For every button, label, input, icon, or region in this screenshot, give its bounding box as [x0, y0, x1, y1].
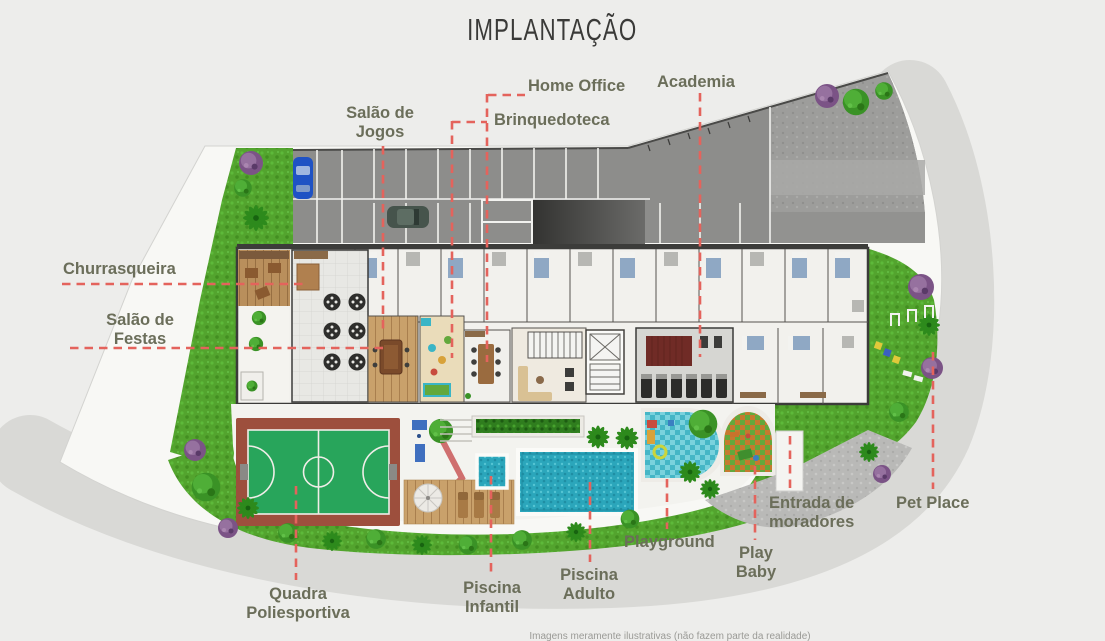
garage-ramp: [533, 200, 645, 245]
sports-court: [236, 418, 400, 526]
playroom: [420, 316, 464, 402]
label-brinquedoteca: Brinquedoteca: [494, 111, 610, 130]
gym-room: [636, 328, 733, 402]
car-dark: [387, 206, 429, 228]
label-academia: Academia: [657, 73, 735, 92]
label-churrasqueira: Churrasqueira: [63, 260, 176, 279]
play-baby-area: [720, 406, 776, 476]
page-title: IMPLANTAÇÃO: [0, 12, 1105, 48]
car-blue: [293, 157, 313, 199]
party-room: [292, 250, 368, 402]
label-entrada: Entrada demoradores: [769, 494, 854, 532]
label-salao-jogos: Salão deJogos: [334, 104, 426, 142]
label-home-office: Home Office: [528, 77, 625, 96]
umbrella: [414, 484, 442, 512]
label-play-baby: PlayBaby: [728, 544, 784, 582]
label-piscina-infantil: PiscinaInfantil: [449, 579, 535, 617]
building: [237, 244, 868, 410]
adult-pool: [518, 450, 636, 514]
label-playground: Playground: [624, 533, 715, 552]
label-salao-festas: Salão deFestas: [95, 311, 185, 349]
label-piscina-adulto: PiscinaAdulto: [546, 566, 632, 604]
label-quadra: QuadraPoliesportiva: [218, 585, 378, 623]
disclaimer-text: Imagens meramente ilustrativas (não faze…: [500, 631, 840, 641]
label-pet-place: Pet Place: [896, 494, 969, 513]
game-room: [368, 316, 418, 402]
lobby-core: [512, 328, 624, 402]
churrasqueira-area: [238, 250, 290, 402]
site-plan-page: IMPLANTAÇÃO Home Office Academia Salão d…: [0, 0, 1105, 641]
